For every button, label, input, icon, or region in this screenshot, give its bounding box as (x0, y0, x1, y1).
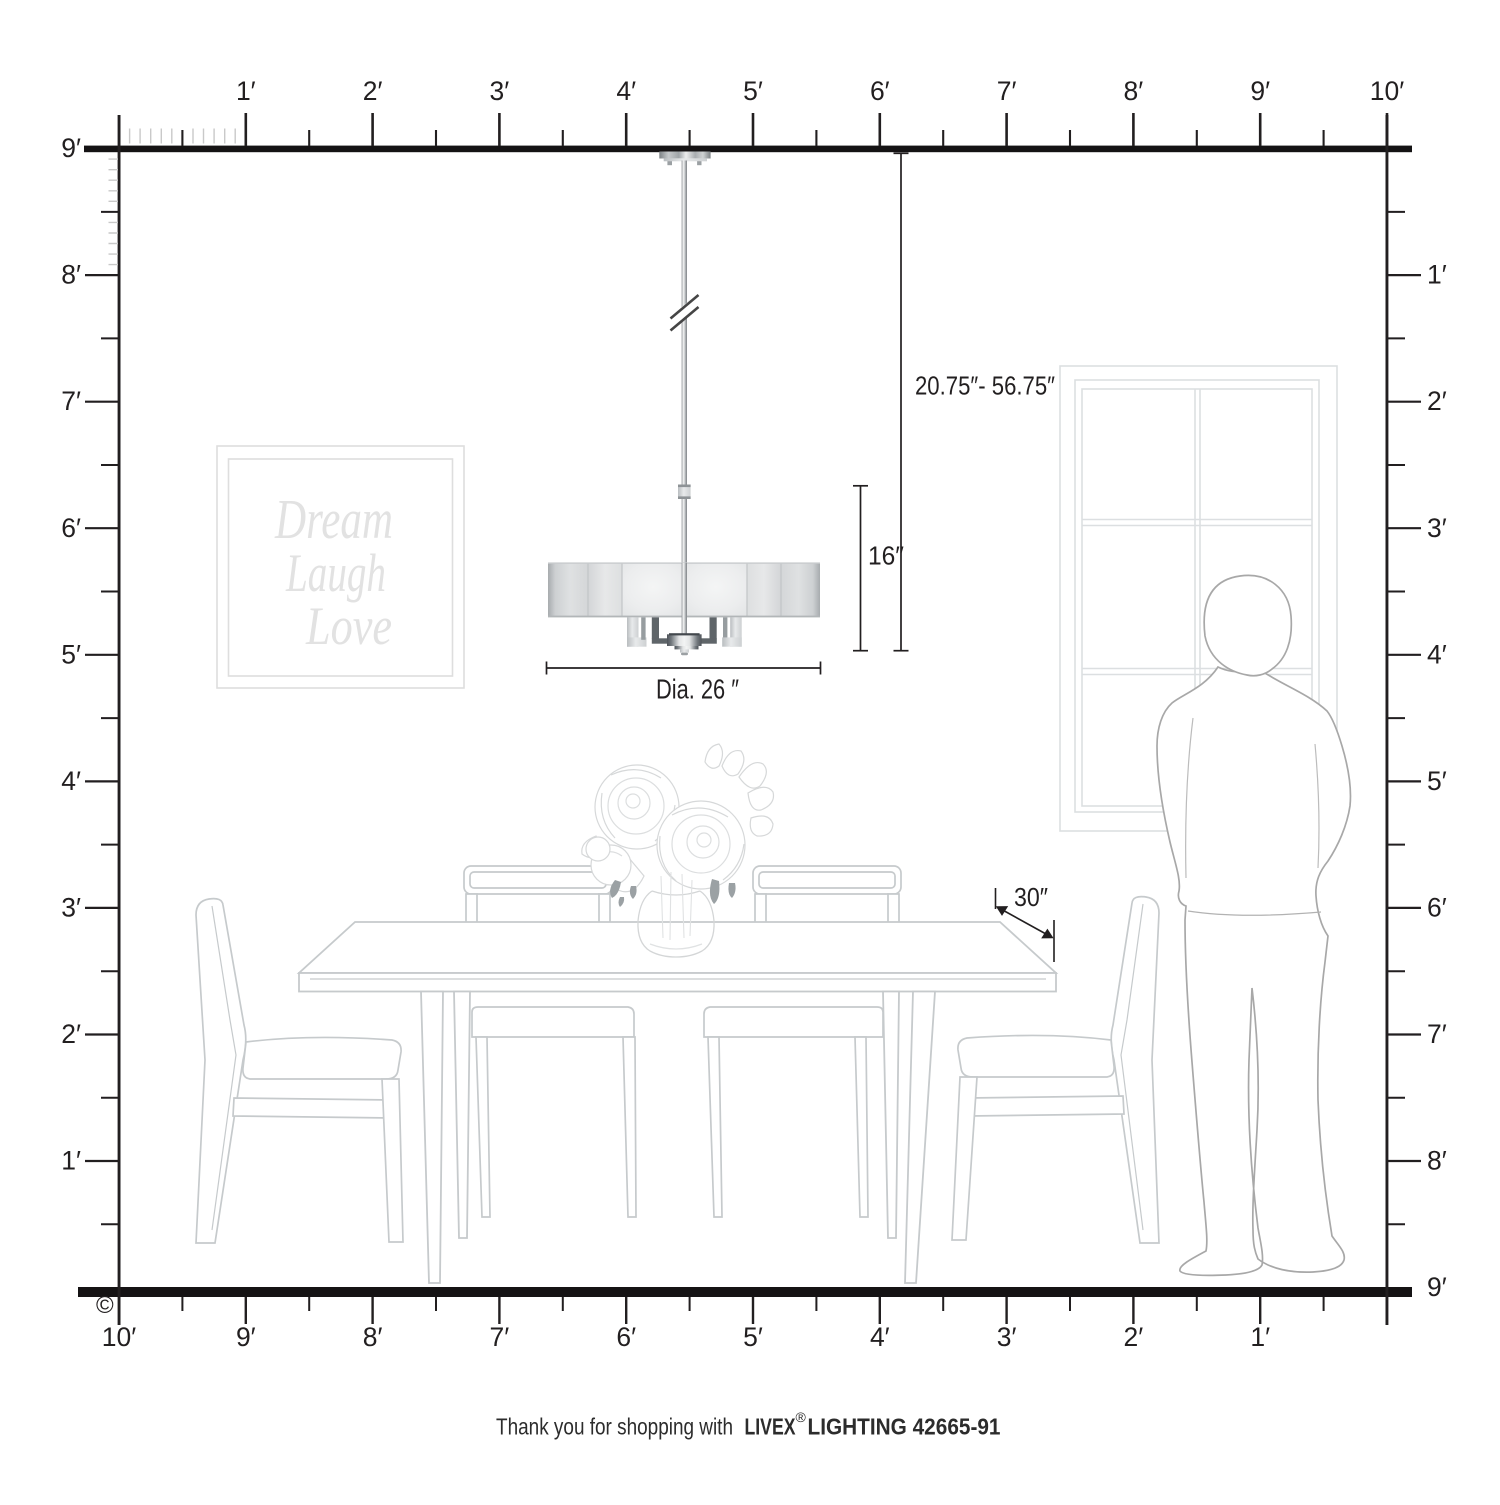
svg-text:9′: 9′ (236, 1322, 256, 1352)
svg-text:7′: 7′ (490, 1322, 510, 1352)
svg-text:Dream: Dream (274, 489, 393, 551)
svg-text:Laugh: Laugh (285, 543, 386, 603)
svg-text:2′: 2′ (1124, 1322, 1144, 1352)
svg-text:7′: 7′ (61, 386, 81, 416)
svg-text:5′: 5′ (61, 639, 81, 669)
svg-text:5′: 5′ (1427, 766, 1447, 796)
svg-text:4′: 4′ (616, 76, 636, 106)
svg-text:4′: 4′ (61, 766, 81, 796)
svg-text:20.75″- 56.75″: 20.75″- 56.75″ (915, 371, 1055, 401)
svg-text:4′: 4′ (1427, 639, 1447, 669)
svg-text:LIGHTING 42665-91: LIGHTING 42665-91 (808, 1414, 1001, 1440)
svg-text:8′: 8′ (61, 260, 81, 290)
svg-text:7′: 7′ (1427, 1019, 1447, 1049)
svg-text:3′: 3′ (997, 1322, 1017, 1352)
svg-text:3′: 3′ (1427, 513, 1447, 543)
svg-text:8′: 8′ (1124, 76, 1144, 106)
svg-text:7′: 7′ (997, 76, 1017, 106)
svg-text:®: ® (796, 1409, 807, 1425)
svg-text:9′: 9′ (1250, 76, 1270, 106)
svg-text:16″: 16″ (868, 541, 904, 571)
svg-text:4′: 4′ (870, 1322, 890, 1352)
svg-text:2′: 2′ (61, 1019, 81, 1049)
svg-text:6′: 6′ (616, 1322, 636, 1352)
svg-text:©: © (96, 1292, 114, 1319)
svg-text:6′: 6′ (870, 76, 890, 106)
svg-text:3′: 3′ (490, 76, 510, 106)
svg-text:6′: 6′ (1427, 892, 1447, 922)
svg-text:30″: 30″ (1014, 882, 1048, 912)
svg-text:5′: 5′ (743, 1322, 763, 1352)
svg-text:5′: 5′ (743, 76, 763, 106)
svg-text:1′: 1′ (1427, 260, 1447, 290)
svg-text:8′: 8′ (363, 1322, 383, 1352)
svg-text:8′: 8′ (1427, 1146, 1447, 1176)
svg-text:10′: 10′ (102, 1322, 136, 1352)
svg-text:1′: 1′ (61, 1146, 81, 1176)
svg-text:3′: 3′ (61, 892, 81, 922)
svg-text:10′: 10′ (1370, 76, 1404, 106)
svg-text:9′: 9′ (61, 133, 81, 163)
svg-text:1′: 1′ (1250, 1322, 1270, 1352)
svg-text:LIVEX: LIVEX (745, 1414, 796, 1440)
svg-text:2′: 2′ (1427, 386, 1447, 416)
svg-text:6′: 6′ (61, 513, 81, 543)
svg-text:Dia. 26 ″: Dia. 26 ″ (656, 674, 739, 705)
svg-text:9′: 9′ (1427, 1272, 1447, 1302)
svg-text:2′: 2′ (363, 76, 383, 106)
svg-text:Thank you for shopping with: Thank you for shopping with (496, 1414, 733, 1440)
svg-text:Love: Love (305, 596, 392, 656)
svg-text:1′: 1′ (236, 76, 256, 106)
